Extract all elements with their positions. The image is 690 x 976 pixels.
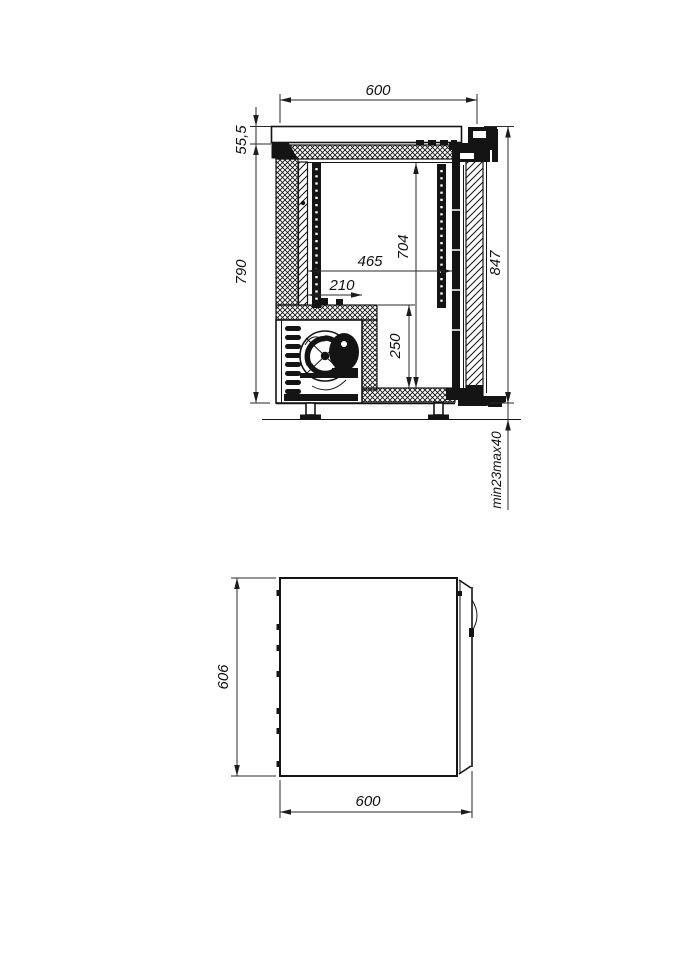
dim-machine-width-label: 210 — [328, 277, 355, 294]
door-inner-liner — [452, 162, 460, 390]
technical-drawing-canvas: 600 55,5 790 704 465 — [0, 0, 690, 976]
dim-overall-height: 847 — [484, 127, 514, 404]
dim-top-width: 600 — [280, 82, 477, 124]
dim-machine-height: 250 — [378, 305, 415, 388]
door-lock — [469, 628, 474, 637]
insulation-top — [276, 145, 458, 159]
dim-machine-height-label: 250 — [387, 333, 404, 360]
dim-body-height-label: 790 — [233, 259, 250, 285]
dim-counter-thickness: 55,5 — [233, 107, 271, 170]
dim-plan-width: 600 — [280, 771, 472, 818]
weld-dot — [301, 201, 305, 205]
plan-door — [458, 580, 477, 774]
adjustable-foot-left — [300, 403, 321, 420]
door-panel — [466, 150, 483, 396]
dim-inner-height-label: 704 — [395, 234, 412, 259]
plan-view: 606 600 — [215, 578, 477, 818]
step-insulation-side — [362, 320, 377, 390]
side-section-view: 600 55,5 790 704 465 — [233, 82, 521, 510]
shelf-rail-left — [312, 162, 321, 308]
dim-foot-adjust-label: min23max40 — [489, 431, 504, 509]
adjustable-foot-right — [428, 403, 449, 420]
dim-plan-depth: 606 — [215, 578, 276, 776]
compressor — [329, 333, 359, 376]
drawing-sheet: 600 55,5 790 704 465 — [0, 0, 690, 976]
insulation-left-wall — [276, 159, 298, 305]
compressor-mount-bar — [300, 373, 358, 378]
insulation-floor — [362, 388, 455, 402]
dim-overall-height-label: 847 — [487, 250, 504, 276]
dim-body-height: 790 — [233, 144, 270, 403]
step-insulation-top — [276, 305, 377, 320]
dim-plan-width-label: 600 — [355, 793, 381, 810]
dim-inner-width: 465 — [308, 253, 452, 274]
dim-top-width-label: 600 — [365, 82, 391, 99]
shelf-rail-right — [437, 164, 446, 308]
dim-plan-depth-label: 606 — [215, 664, 232, 690]
left-inner-panel — [299, 162, 308, 305]
plan-body — [280, 578, 457, 776]
dim-foot-adjust: min23max40 — [489, 393, 511, 511]
dim-counter-thickness-label: 55,5 — [233, 125, 250, 155]
compartment-base — [284, 394, 358, 401]
dim-inner-width-label: 465 — [357, 253, 383, 270]
